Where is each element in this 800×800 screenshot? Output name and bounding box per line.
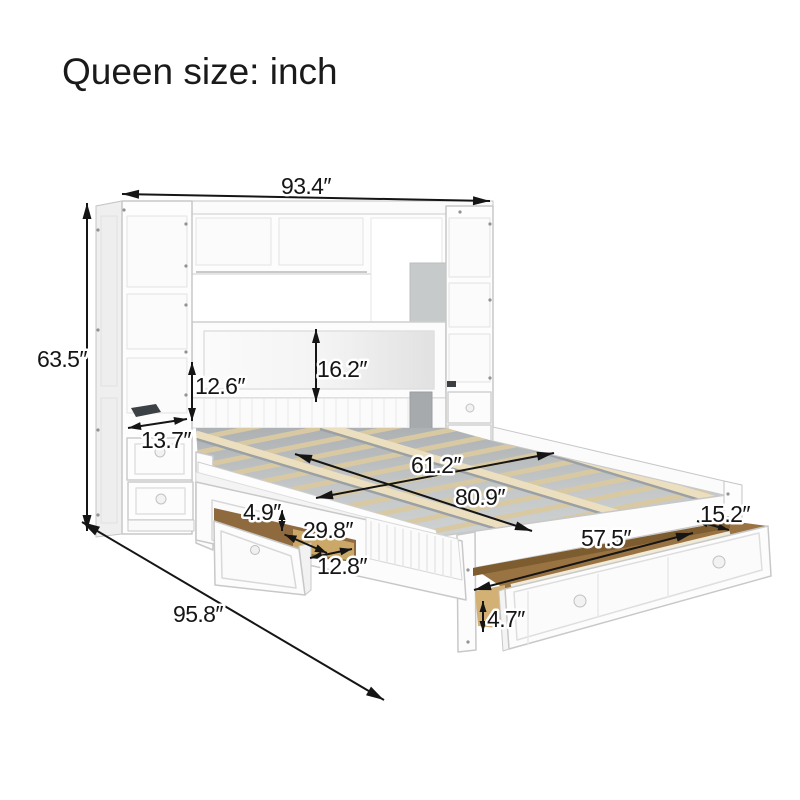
svg-text:12.8″: 12.8″ bbox=[317, 553, 367, 579]
svg-text:15.2″: 15.2″ bbox=[700, 501, 750, 527]
svg-text:4.9″: 4.9″ bbox=[243, 499, 281, 525]
svg-text:16.2″: 16.2″ bbox=[317, 356, 367, 382]
svg-text:63.5″: 63.5″ bbox=[37, 346, 87, 372]
svg-text:95.8″: 95.8″ bbox=[173, 601, 223, 627]
svg-text:29.8″: 29.8″ bbox=[303, 517, 353, 543]
svg-text:57.5″: 57.5″ bbox=[581, 525, 631, 551]
svg-text:Queen size: inch: Queen size: inch bbox=[62, 51, 338, 92]
svg-text:93.4″: 93.4″ bbox=[281, 173, 331, 199]
svg-text:80.9″: 80.9″ bbox=[455, 484, 505, 510]
svg-text:12.6″: 12.6″ bbox=[195, 373, 245, 399]
svg-text:13.7″: 13.7″ bbox=[141, 427, 191, 453]
svg-text:61.2″: 61.2″ bbox=[411, 452, 461, 478]
svg-text:4.7″: 4.7″ bbox=[487, 606, 525, 632]
